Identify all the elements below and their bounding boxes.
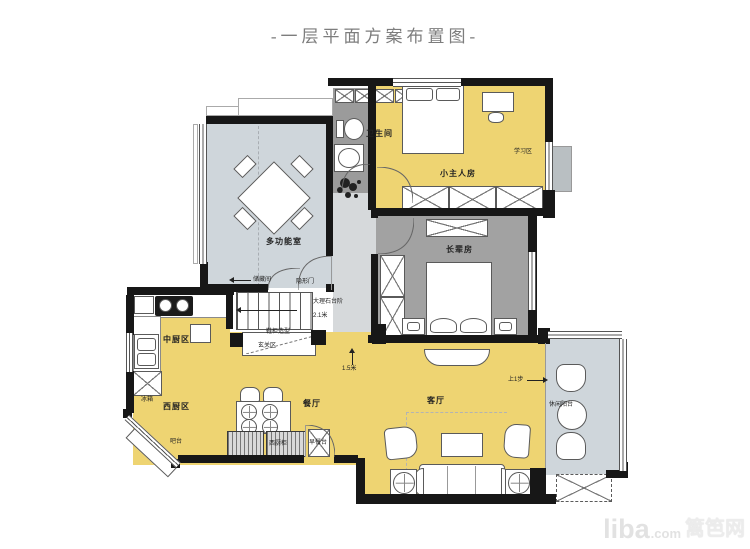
window-outer-sill — [193, 124, 198, 264]
annotation-line — [527, 380, 543, 381]
watermark-domain: .com — [651, 526, 681, 541]
wall — [371, 208, 378, 218]
door-arc-elder-bedroom — [378, 218, 414, 254]
balcony-chair — [556, 364, 586, 392]
wall — [334, 455, 358, 463]
floor-plan-page: -一层平面方案布置图- — [0, 0, 750, 549]
staircase — [236, 292, 313, 330]
wall — [226, 287, 233, 329]
nightstand-lamp — [407, 322, 420, 331]
sink-basin — [137, 353, 156, 366]
dining-chair-seat — [241, 404, 257, 420]
kid-desk — [482, 92, 514, 112]
door-leaf — [305, 425, 306, 457]
elder-bed-pillow — [430, 318, 457, 333]
exterior-mat — [556, 474, 612, 502]
tv-cabinet — [424, 349, 490, 366]
window — [393, 78, 461, 87]
wall — [530, 468, 546, 504]
exterior-sill-top-left — [206, 106, 239, 116]
annotation-arrow — [349, 348, 355, 353]
exterior-sill-top — [238, 98, 333, 116]
wall — [178, 455, 304, 463]
elder-bed-pillow — [460, 318, 487, 333]
kid-desk-chair — [488, 112, 504, 123]
room-label-balcony: 休闲阳台 — [549, 402, 573, 408]
elder-bench — [426, 219, 488, 237]
sideboard-counter — [227, 431, 264, 457]
bath-closet-box — [375, 89, 394, 103]
wall — [311, 330, 326, 345]
annotation-hidden-door: 隐形门 — [296, 279, 314, 285]
nightstand-lamp — [499, 322, 512, 331]
dining-chair — [240, 387, 260, 402]
watermark-brand: liba — [603, 519, 650, 541]
armchair — [503, 423, 531, 459]
annotation-foyer: 玄关区 — [258, 343, 276, 349]
door-arc-kid-bedroom — [377, 167, 413, 203]
table-lamp — [393, 472, 415, 494]
door-arc-bathroom — [342, 164, 370, 192]
wall — [368, 335, 538, 343]
room-label-elder-bedroom: 长辈房 — [446, 246, 473, 254]
stove-burner — [159, 299, 172, 312]
annotation-height: 2.1米 — [313, 313, 327, 319]
sink-basin — [137, 338, 156, 351]
dining-chair-seat — [262, 404, 278, 420]
stair-arrow — [236, 307, 241, 313]
wall — [230, 333, 243, 347]
toilet-bowl — [344, 118, 364, 140]
room-label-multi: 多功能室 — [266, 238, 302, 246]
wall — [230, 284, 268, 292]
room-label-study-area: 学习区 — [514, 149, 532, 155]
wall — [326, 116, 333, 256]
wall — [126, 295, 134, 335]
sofa-seat-divider — [447, 466, 448, 494]
annotation-west-cabinet: 西厨柜 — [269, 441, 287, 447]
armchair — [383, 425, 418, 460]
window — [545, 142, 553, 190]
table-lamp — [508, 472, 530, 494]
toilet-tank — [336, 120, 344, 138]
elder-wardrobe — [380, 255, 405, 297]
step-edge-line — [545, 343, 546, 468]
window — [528, 252, 536, 310]
wall — [372, 324, 386, 344]
room-label-kitchen-west: 西厨区 — [163, 403, 190, 411]
wall — [356, 494, 556, 504]
room-label-kitchen-cn: 中厨区 — [163, 336, 190, 344]
annotation-line — [234, 280, 251, 281]
annotation-arrow — [543, 377, 548, 383]
annotation-shoe-feature: 鞋柜造型 — [266, 329, 290, 335]
fridge — [133, 371, 162, 396]
room-label-kid-bedroom: 小主人房 — [440, 170, 476, 178]
coffee-table — [441, 433, 483, 457]
annotation-width: 1.5米 — [342, 366, 356, 372]
kid-bed-pillow — [406, 88, 433, 101]
room-label-living: 客厅 — [427, 397, 445, 405]
window — [199, 124, 207, 264]
wall — [376, 208, 555, 216]
page-title: -一层平面方案布置图- — [0, 22, 750, 47]
wall — [206, 116, 333, 124]
window — [126, 333, 133, 372]
sofa — [419, 464, 505, 496]
kitchen-island-box — [190, 324, 211, 343]
range-hood-box — [134, 296, 154, 314]
watermark: liba.com篱笆网 — [603, 512, 745, 541]
annotation-breakfast: 早餐台 — [309, 440, 327, 446]
annotation-bar: 吧台 — [170, 439, 182, 445]
stove-burner — [176, 299, 189, 312]
annotation-fridge: 冰箱 — [141, 397, 153, 403]
wall — [545, 78, 553, 144]
watermark-suffix: 篱笆网 — [685, 512, 745, 541]
wall — [127, 287, 234, 295]
door-leaf — [331, 256, 332, 290]
room-label-dining: 餐厅 — [303, 400, 321, 408]
sofa-seat-divider — [475, 466, 476, 494]
room-label-bathroom: 卫生间 — [366, 130, 393, 138]
wall — [126, 371, 134, 413]
stair-direction-line — [241, 310, 297, 311]
dining-chair — [263, 387, 283, 402]
annotation-step-up: 上1步 — [508, 377, 523, 383]
kid-bed-pillow — [436, 88, 460, 101]
window — [619, 339, 627, 471]
window — [548, 331, 622, 339]
annotation-marble-steps: 大理石台阶 — [313, 299, 343, 305]
annotation-arrow — [229, 277, 234, 283]
shoe-cabinet-dashed-line — [246, 336, 314, 354]
annotation-storage: 储藏间 — [253, 277, 271, 283]
bath-closet-box — [335, 89, 354, 103]
balcony-chair — [556, 432, 586, 460]
